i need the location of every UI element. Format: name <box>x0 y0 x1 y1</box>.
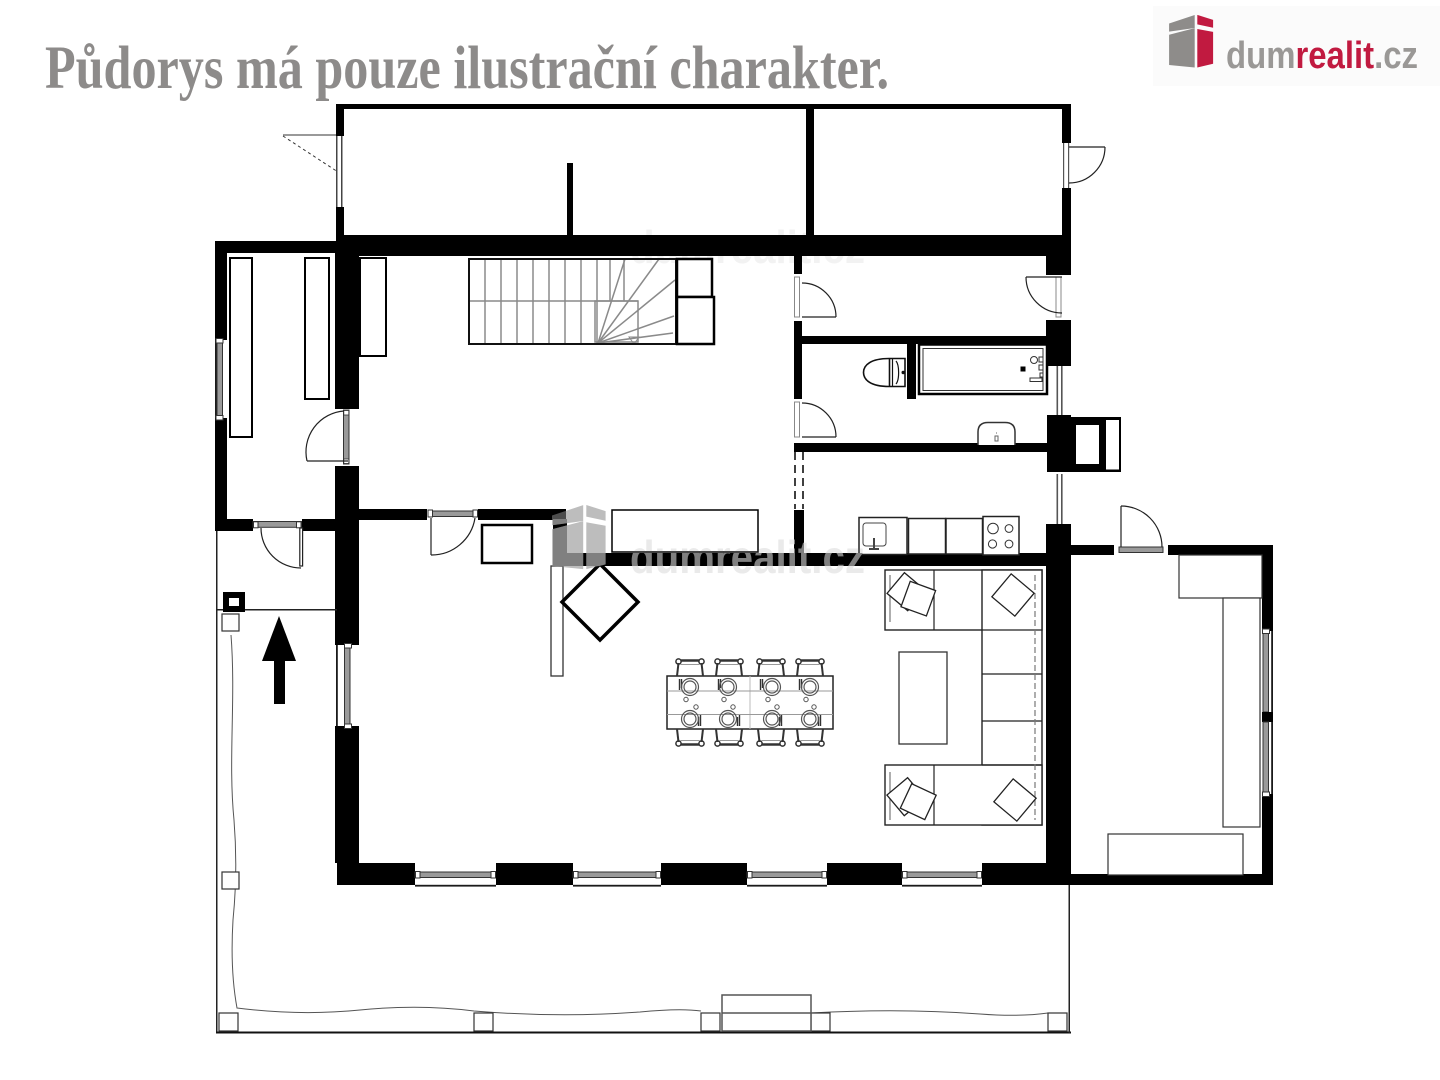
svg-text:Půdorys má pouze ilustrační ch: Půdorys má pouze ilustrační charakter. <box>45 35 889 102</box>
svg-text:dumrealit.cz: dumrealit.cz <box>1226 35 1418 77</box>
